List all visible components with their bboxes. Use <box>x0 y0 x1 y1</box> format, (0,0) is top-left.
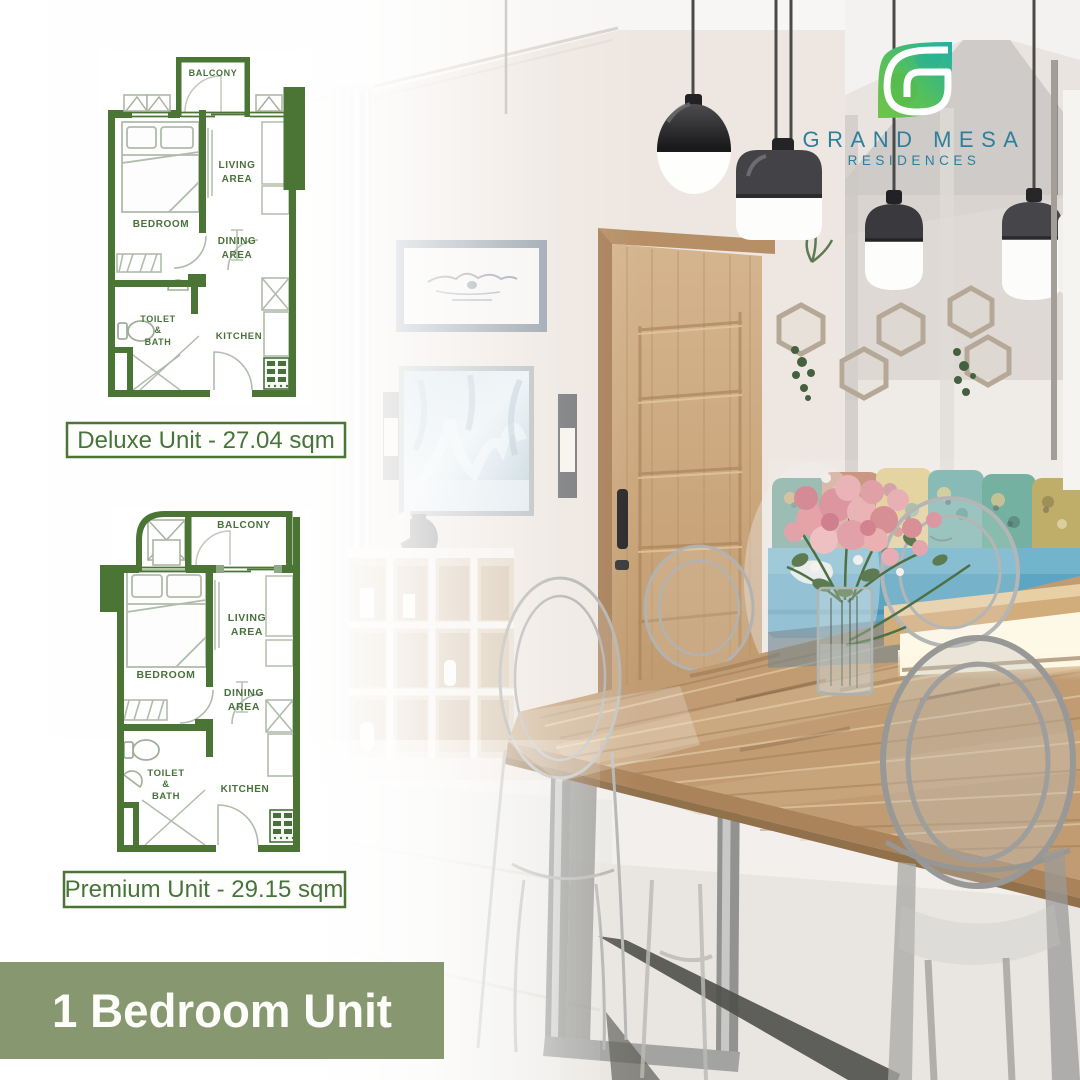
svg-text:BALCONY: BALCONY <box>217 520 271 531</box>
svg-text:TOILET: TOILET <box>140 314 175 324</box>
svg-text:&: & <box>162 779 169 790</box>
svg-text:GRAND MESA: GRAND MESA <box>803 127 1026 152</box>
svg-text:KITCHEN: KITCHEN <box>221 784 270 795</box>
svg-text:BEDROOM: BEDROOM <box>136 669 195 681</box>
svg-text:DINING: DINING <box>218 236 257 247</box>
svg-text:AREA: AREA <box>222 174 253 185</box>
svg-text:KITCHEN: KITCHEN <box>216 331 262 342</box>
svg-text:AREA: AREA <box>228 701 260 713</box>
svg-text:BATH: BATH <box>152 791 180 802</box>
svg-text:&: & <box>154 325 161 335</box>
svg-text:Deluxe Unit - 27.04 sqm: Deluxe Unit - 27.04 sqm <box>77 427 334 454</box>
svg-text:BALCONY: BALCONY <box>189 68 238 78</box>
svg-text:BEDROOM: BEDROOM <box>133 219 189 230</box>
svg-text:RESIDENCES: RESIDENCES <box>848 153 981 168</box>
svg-text:AREA: AREA <box>231 626 263 638</box>
svg-text:Premium Unit - 29.15 sqm: Premium Unit - 29.15 sqm <box>65 876 344 903</box>
svg-text:TOILET: TOILET <box>147 768 184 779</box>
svg-text:LIVING: LIVING <box>228 612 267 624</box>
svg-text:LIVING: LIVING <box>219 160 256 171</box>
svg-text:BATH: BATH <box>145 337 172 347</box>
svg-text:1 Bedroom Unit: 1 Bedroom Unit <box>52 984 392 1037</box>
svg-text:DINING: DINING <box>224 687 264 699</box>
svg-text:AREA: AREA <box>222 250 253 261</box>
